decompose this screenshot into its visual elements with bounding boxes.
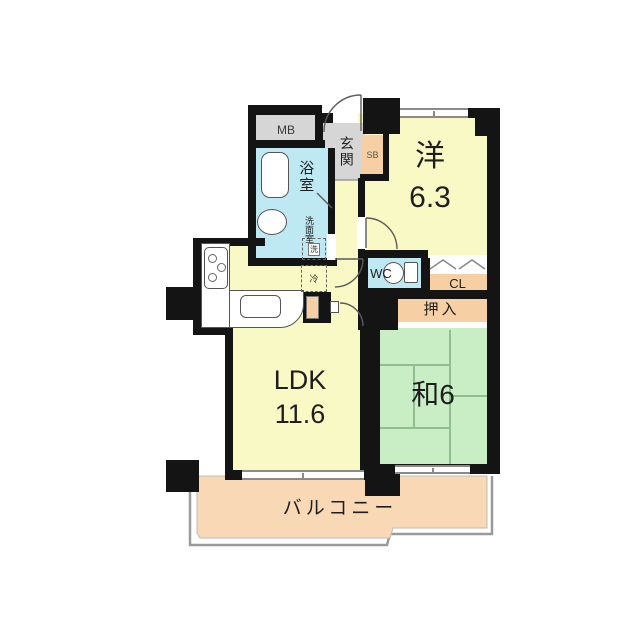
label-balcony: バルコニー (225, 494, 455, 524)
door-symbols (0, 0, 640, 640)
bath-door-line (317, 193, 332, 208)
label-washroom: 洗面室 (298, 204, 318, 254)
ldk-door-arc (335, 259, 363, 287)
label-mb: MB (258, 118, 314, 144)
label-washitsu: 和6 (388, 376, 478, 414)
label-wc: WC (368, 263, 394, 285)
label-western: 洋 6.3 (388, 126, 472, 228)
label-western-size: 6.3 (409, 181, 451, 214)
label-oshiire: 押入 (398, 299, 485, 321)
label-ldk: LDK 11.6 (238, 360, 362, 436)
label-sb: SB (362, 147, 383, 165)
label-ldk-name: LDK (274, 366, 327, 396)
ldk-lower-door-arc (340, 303, 363, 326)
closet-hanger-zigzag (430, 260, 485, 269)
label-entrance: 玄関 (333, 126, 359, 178)
floor-plan: 冷 洗 MB 浴室 洗面室 玄関 SB 洋 6.3 WC CL 押入 LD (0, 0, 640, 640)
label-cl: CL (432, 274, 483, 295)
label-ldk-size: 11.6 (275, 400, 326, 430)
label-western-name: 洋 (415, 140, 445, 173)
label-bath: 浴室 (291, 150, 319, 204)
